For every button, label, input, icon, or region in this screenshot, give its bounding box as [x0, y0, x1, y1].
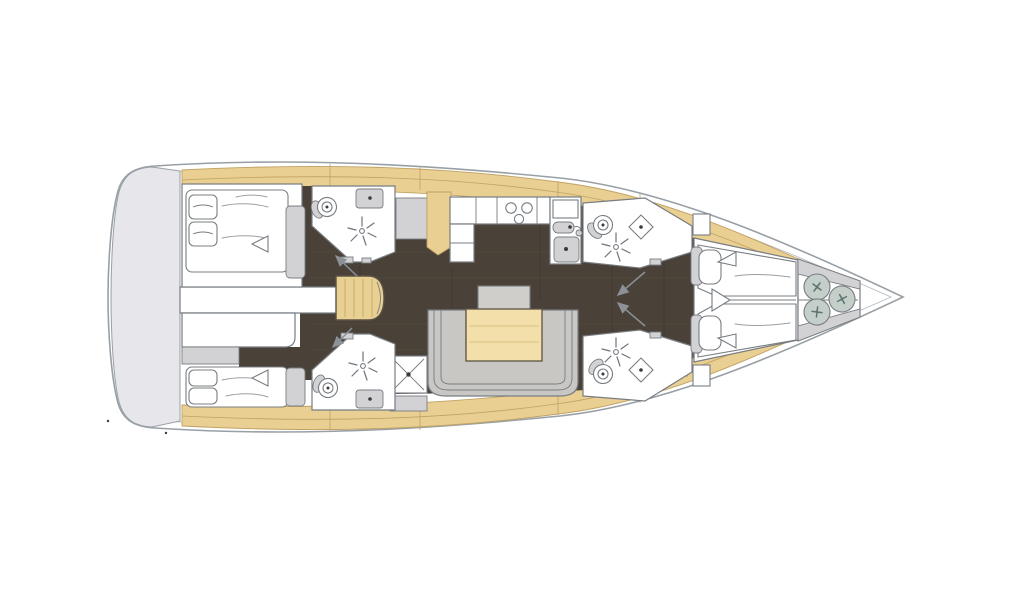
- hull-mark: [107, 420, 109, 422]
- stove-burner-icon: [506, 203, 516, 213]
- wardrobe: [396, 198, 427, 239]
- pillow: [699, 316, 721, 350]
- counter-locker: [553, 200, 578, 218]
- bow-locker: [798, 259, 860, 341]
- door-sill: [362, 258, 371, 263]
- hanging-locker: [427, 192, 451, 255]
- stove-burner-icon: [514, 214, 523, 223]
- door-sill: [650, 332, 661, 338]
- kettle: [576, 230, 582, 236]
- aft-walkway: [180, 287, 340, 313]
- pillow: [699, 250, 721, 284]
- bed-foot-trim: [286, 206, 305, 278]
- fender-icon: [804, 274, 830, 300]
- locker: [693, 214, 710, 235]
- companionway-stairs: [336, 276, 384, 320]
- pillow: [189, 370, 217, 386]
- yacht-floor-plan: [0, 0, 1024, 600]
- transom-platform: [111, 167, 180, 427]
- locker: [693, 365, 710, 386]
- door-sill: [650, 259, 661, 265]
- pillow: [189, 388, 217, 404]
- hull-mark: [165, 432, 167, 434]
- galley-counter: [450, 197, 550, 224]
- stove-burner-icon: [522, 203, 532, 213]
- aft-cabin-port: [182, 184, 305, 287]
- shelf: [182, 347, 239, 364]
- bed-foot-trim: [286, 368, 305, 406]
- floor-plan-canvas: [0, 0, 1024, 600]
- salon-table: [466, 309, 542, 361]
- stool: [478, 286, 530, 312]
